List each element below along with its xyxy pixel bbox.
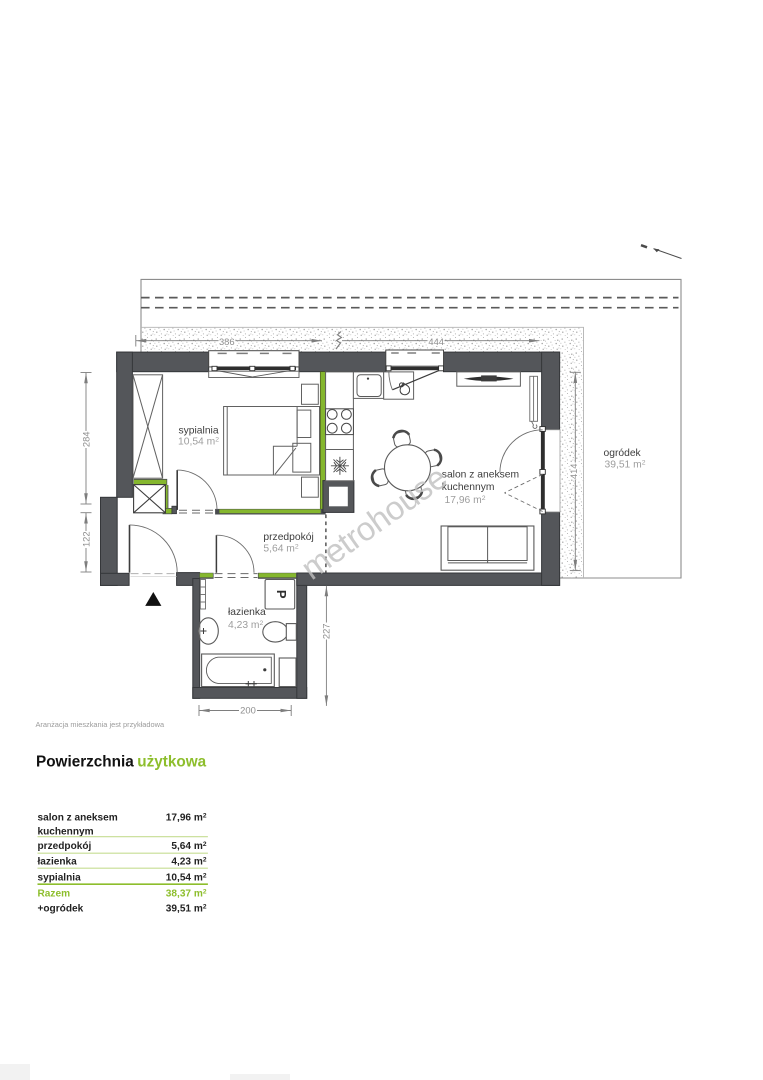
svg-text:17,96 m2: 17,96 m2 bbox=[445, 495, 486, 506]
svg-text:39,51 m2: 39,51 m2 bbox=[605, 459, 646, 470]
svg-text:10,54 m2: 10,54 m2 bbox=[178, 437, 219, 448]
svg-text:414: 414 bbox=[568, 463, 579, 479]
svg-text:200: 200 bbox=[240, 705, 256, 716]
svg-text:sypialnia: sypialnia bbox=[179, 425, 219, 436]
svg-text:kuchennym: kuchennym bbox=[38, 826, 94, 837]
svg-text:122: 122 bbox=[80, 531, 91, 547]
svg-text:227: 227 bbox=[321, 623, 332, 639]
svg-text:salon z aneksem: salon z aneksem bbox=[442, 470, 519, 481]
svg-text:10,54 m2: 10,54 m2 bbox=[166, 872, 207, 883]
svg-text:Aranżacja mieszkania jest przy: Aranżacja mieszkania jest przykładowa bbox=[36, 720, 165, 729]
svg-text:5,64 m2: 5,64 m2 bbox=[263, 543, 298, 554]
svg-text:przedpokój: przedpokój bbox=[263, 532, 313, 543]
svg-text:39,51 m2: 39,51 m2 bbox=[166, 904, 207, 915]
svg-text:4,23 m2: 4,23 m2 bbox=[171, 857, 206, 868]
svg-text:łazienka: łazienka bbox=[228, 607, 266, 618]
svg-text:przedpokój: przedpokój bbox=[38, 841, 92, 852]
svg-text:+ogródek: +ogródek bbox=[38, 904, 84, 915]
svg-text:284: 284 bbox=[80, 431, 91, 447]
svg-text:386: 386 bbox=[219, 336, 235, 347]
svg-text:Powierzchniaużytkowa: Powierzchniaużytkowa bbox=[36, 754, 207, 771]
svg-text:38,37 m2: 38,37 m2 bbox=[166, 889, 207, 900]
svg-text:sypialnia: sypialnia bbox=[38, 872, 82, 883]
svg-text:salon z aneksem: salon z aneksem bbox=[38, 812, 118, 823]
svg-text:4,23 m2: 4,23 m2 bbox=[228, 620, 263, 631]
svg-text:Razem: Razem bbox=[38, 889, 71, 900]
svg-text:P: P bbox=[274, 590, 289, 599]
svg-text:5,64 m2: 5,64 m2 bbox=[171, 841, 206, 852]
svg-text:444: 444 bbox=[428, 336, 444, 347]
svg-text:ogródek: ogródek bbox=[604, 448, 642, 459]
svg-text:łazienka: łazienka bbox=[38, 857, 78, 868]
svg-text:17,96 m2: 17,96 m2 bbox=[166, 812, 207, 823]
